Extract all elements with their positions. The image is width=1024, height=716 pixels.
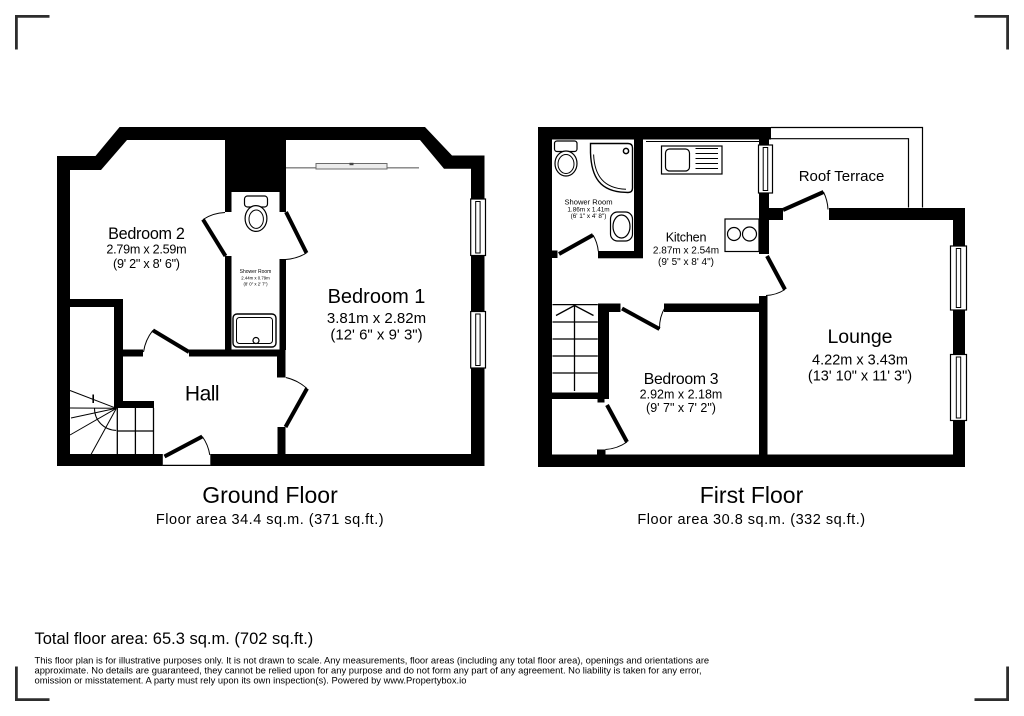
svg-text:4.22m x 3.43m: 4.22m x 3.43m: [812, 353, 908, 369]
svg-text:Roof Terrace: Roof Terrace: [799, 168, 885, 185]
svg-text:Bedroom 1: Bedroom 1: [328, 286, 426, 308]
svg-text:2.92m x 2.18m: 2.92m x 2.18m: [640, 388, 723, 402]
svg-text:(9' 5" x 8' 4"): (9' 5" x 8' 4"): [658, 257, 714, 268]
svg-text:Bedroom 3: Bedroom 3: [644, 371, 719, 388]
svg-text:Floor area 34.4 sq.m. (371 sq.: Floor area 34.4 sq.m. (371 sq.ft.): [156, 512, 384, 528]
svg-text:Kitchen: Kitchen: [666, 231, 707, 245]
svg-text:Total floor area: 65.3 sq.m. (: Total floor area: 65.3 sq.m. (702 sq.ft.…: [35, 630, 314, 648]
svg-text:3.81m x 2.82m: 3.81m x 2.82m: [327, 310, 426, 327]
svg-text:Floor area 30.8 sq.m. (332 sq.: Floor area 30.8 sq.m. (332 sq.ft.): [637, 512, 865, 528]
svg-text:2.44m x 0.79m: 2.44m x 0.79m: [241, 276, 270, 281]
svg-text:Lounge: Lounge: [827, 326, 892, 348]
svg-text:Shower Room: Shower Room: [240, 269, 272, 275]
svg-text:Shower Room: Shower Room: [564, 198, 612, 207]
svg-text:Ground Floor: Ground Floor: [202, 482, 338, 508]
svg-text:2.87m x 2.54m: 2.87m x 2.54m: [653, 245, 719, 256]
svg-text:Hall: Hall: [185, 383, 219, 406]
svg-text:(8' 0" x 2' 7"): (8' 0" x 2' 7"): [243, 282, 268, 287]
svg-text:(6' 1" x 4' 8"): (6' 1" x 4' 8"): [571, 213, 607, 220]
svg-text:(9' 2" x 8' 6"): (9' 2" x 8' 6"): [113, 257, 180, 271]
svg-text:(13' 10" x 11' 3"): (13' 10" x 11' 3"): [808, 369, 912, 385]
svg-text:(9' 7" x 7' 2"): (9' 7" x 7' 2"): [646, 401, 716, 415]
svg-text:(12' 6" x 9' 3"): (12' 6" x 9' 3"): [330, 327, 422, 344]
svg-text:First Floor: First Floor: [700, 482, 804, 508]
svg-text:omission or misstatement. A pa: omission or misstatement. A party must r…: [35, 675, 467, 686]
svg-text:Bedroom 2: Bedroom 2: [108, 225, 185, 243]
svg-text:2.79m x 2.59m: 2.79m x 2.59m: [106, 243, 186, 257]
